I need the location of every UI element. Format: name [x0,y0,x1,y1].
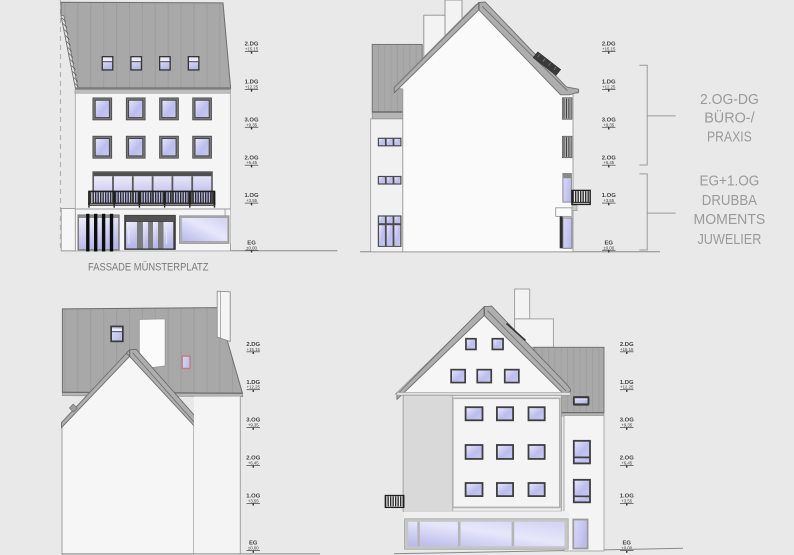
svg-text:MOMENTS: MOMENTS [694,211,766,228]
svg-text:+9,35: +9,35 [603,122,614,127]
svg-text:+3,55: +3,55 [621,498,632,503]
svg-text:+6,45: +6,45 [621,461,632,466]
svg-text:+3,55: +3,55 [603,198,614,203]
svg-text:PRAXIS: PRAXIS [707,128,752,145]
svg-text:±0,00: ±0,00 [246,245,257,250]
svg-text:+15,15: +15,15 [247,347,261,352]
svg-text:2.OG-DG: 2.OG-DG [700,91,759,108]
svg-text:+6,45: +6,45 [248,461,259,466]
svg-text:+6,45: +6,45 [246,160,257,165]
svg-text:±0,00: ±0,00 [603,245,614,250]
svg-text:+3,55: +3,55 [248,498,259,503]
svg-text:EG+1.OG: EG+1.OG [700,173,760,190]
svg-text:+3,55: +3,55 [246,198,257,203]
svg-text:+15,15: +15,15 [602,47,616,52]
svg-text:BÜRO-/: BÜRO-/ [704,109,755,127]
svg-text:±0,00: ±0,00 [248,546,259,551]
svg-text:+9,35: +9,35 [248,423,259,428]
svg-text:+12,25: +12,25 [620,385,634,390]
svg-text:+15,15: +15,15 [620,347,634,352]
svg-text:FASSADE MÜNSTERPLATZ: FASSADE MÜNSTERPLATZ [88,262,209,274]
svg-text:JUWELIER: JUWELIER [697,231,761,248]
svg-text:+12,25: +12,25 [602,84,616,89]
svg-text:+9,35: +9,35 [621,423,632,428]
svg-text:+6,45: +6,45 [603,160,614,165]
svg-text:+12,25: +12,25 [245,84,259,89]
svg-text:+12,25: +12,25 [247,385,261,390]
svg-text:+15,15: +15,15 [245,47,259,52]
svg-text:DRUBBA: DRUBBA [702,192,757,209]
svg-text:+9,35: +9,35 [246,122,257,127]
